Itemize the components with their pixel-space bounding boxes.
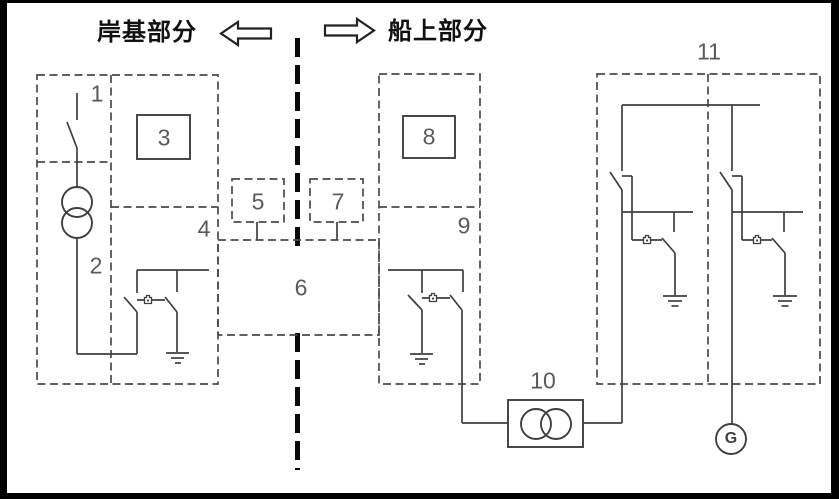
label-10: 10 [530,368,556,395]
ship-section-title: 船上部分 [388,11,488,46]
earth-ground-icon [410,354,433,364]
earth-ground-icon [663,296,687,306]
breaker-right-icon [720,105,803,424]
ship-earthing-switch-icon [388,270,508,423]
label-4: 4 [198,216,211,243]
breaker-left-icon [610,105,693,423]
shore-power-schematic: 岸基部分 船上部分 1 2 3 4 5 6 7 8 9 10 11 G [0,0,839,499]
shore-earthing-switch-icon [124,270,209,363]
earth-ground-icon [773,296,797,306]
label-9: 9 [458,213,471,240]
arrow-right-icon [325,19,374,42]
shore-section-title: 岸基部分 [97,12,197,47]
label-7: 7 [332,189,345,216]
label-8: 8 [423,124,436,151]
disconnector-switch-icon [67,93,77,187]
ship-transformer-icon [508,400,622,447]
earth-ground-icon [166,353,189,363]
switchboard-outline [597,74,820,384]
label-3: 3 [158,125,171,152]
label-11: 11 [697,39,721,66]
label-1: 1 [91,81,104,108]
label-2: 2 [90,253,103,280]
generator-letter: G [725,430,737,448]
schematic-drawing [0,0,839,499]
arrow-left-icon [221,22,271,45]
label-6: 6 [295,275,308,302]
label-5: 5 [252,189,265,216]
